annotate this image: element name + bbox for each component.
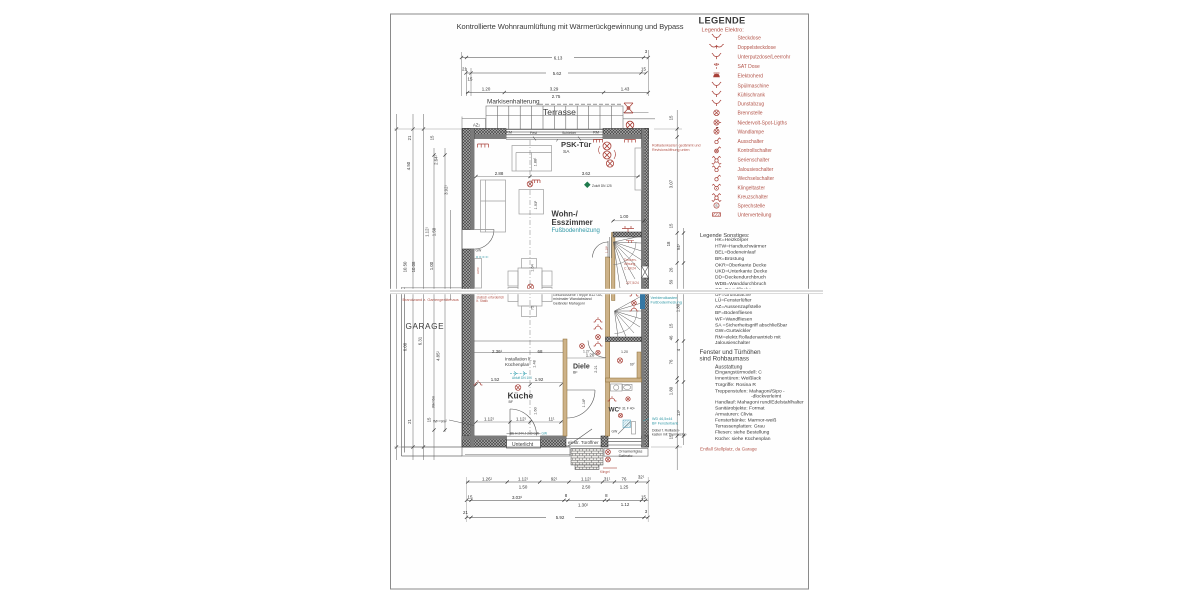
svg-text:SA =Sicherheitsgriff abschließ: SA =Sicherheitsgriff abschließbar <box>715 323 787 329</box>
svg-text:1.48: 1.48 <box>533 360 537 367</box>
svg-text:Jalousieschalter: Jalousieschalter <box>738 167 774 173</box>
svg-text:Kreuzschalter: Kreuzschalter <box>738 195 769 201</box>
svg-text:1.16¹: 1.16¹ <box>582 398 586 407</box>
svg-text:Legende Elektro:: Legende Elektro: <box>702 27 745 33</box>
svg-text:15: 15 <box>468 495 473 500</box>
svg-text:1.93¹: 1.93¹ <box>534 200 538 209</box>
svg-text:15: 15 <box>641 495 646 500</box>
svg-text:Küchenplan: Küchenplan <box>505 362 530 367</box>
svg-text:Fußbodenheizung: Fußbodenheizung <box>552 228 600 234</box>
svg-text:1.20: 1.20 <box>621 350 628 354</box>
svg-text:sind Rohbaumass: sind Rohbaumass <box>700 355 750 362</box>
svg-text:1.25: 1.25 <box>620 484 629 489</box>
svg-text:2.64¹: 2.64¹ <box>434 155 439 165</box>
svg-text:Kontrollschalter: Kontrollschalter <box>738 148 773 154</box>
svg-text:Zuluft DN 125: Zuluft DN 125 <box>592 184 612 188</box>
svg-text:3.07: 3.07 <box>669 179 674 188</box>
svg-text:LEGENDE: LEGENDE <box>699 16 746 26</box>
svg-text:Kühlschrank: Kühlschrank <box>738 92 766 98</box>
svg-text:3.62: 3.62 <box>582 171 591 176</box>
svg-text:PSK-Tür: PSK-Tür <box>561 140 591 149</box>
svg-text:BEL=Bodeneinlauf: BEL=Bodeneinlauf <box>715 249 756 255</box>
svg-text:Entfall Stellplatz, da Garage: Entfall Stellplatz, da Garage <box>700 447 757 452</box>
svg-text:RM=elektr.Rolladenantrieb mit: RM=elektr.Rolladenantrieb mit <box>715 334 781 340</box>
svg-text:15: 15 <box>669 115 674 120</box>
svg-text:kasten mit Thermostop: kasten mit Thermostop <box>652 432 687 436</box>
svg-text:18: 18 <box>666 241 671 246</box>
svg-text:1.12¹: 1.12¹ <box>518 476 529 481</box>
svg-text:RM: RM <box>593 130 599 135</box>
svg-text:Diele: Diele <box>573 364 590 371</box>
svg-text:HTW=Handtuchwärmer: HTW=Handtuchwärmer <box>715 243 767 249</box>
svg-text:RM: RM <box>506 130 512 135</box>
svg-text:GW: GW <box>542 431 548 435</box>
svg-text:21: 21 <box>462 67 467 72</box>
svg-text:3.92¹: 3.92¹ <box>444 185 449 195</box>
svg-text:46: 46 <box>669 335 674 340</box>
svg-text:Klingel: Klingel <box>600 470 610 474</box>
svg-text:5.62: 5.62 <box>553 71 562 76</box>
svg-text:Eingangstürmodell: C: Eingangstürmodell: C <box>715 370 762 376</box>
svg-text:21: 21 <box>407 419 412 424</box>
svg-text:1.26¹: 1.26¹ <box>482 476 493 481</box>
svg-text:C 19/24: C 19/24 <box>624 266 636 270</box>
svg-text:2.50: 2.50 <box>582 484 591 489</box>
svg-text:15: 15 <box>669 323 674 328</box>
svg-text:Ornamentglas: Ornamentglas <box>619 450 643 454</box>
svg-text:SAT Dose: SAT Dose <box>738 64 761 70</box>
svg-text:Fliesen: siehe Bestellung: Fliesen: siehe Bestellung <box>715 430 770 436</box>
svg-text:1.20: 1.20 <box>482 87 491 92</box>
svg-text:LÜ=Fensterlüfter: LÜ=Fensterlüfter <box>715 297 752 304</box>
svg-text:WF=Wandfliesen: WF=Wandfliesen <box>715 317 752 323</box>
svg-text:26: 26 <box>669 267 674 272</box>
svg-text:Jalousieschalter: Jalousieschalter <box>715 340 750 346</box>
svg-text:Ausschalter: Ausschalter <box>738 139 764 145</box>
svg-text:6.00: 6.00 <box>403 342 408 351</box>
svg-text:WF=9m²: WF=9m² <box>433 420 448 424</box>
svg-text:15: 15 <box>468 77 473 82</box>
svg-text:1.12¹: 1.12¹ <box>516 417 527 422</box>
svg-text:WC: WC <box>609 407 620 414</box>
svg-text:lt. Statik: lt. Statik <box>477 299 489 303</box>
svg-text:GW: GW <box>476 249 483 253</box>
svg-text:1.20: 1.20 <box>586 353 595 358</box>
svg-text:WDB=Wanddurchbruch: WDB=Wanddurchbruch <box>715 281 767 287</box>
svg-text:13¹: 13¹ <box>676 409 681 416</box>
svg-text:-dlockverleimt: -dlockverleimt <box>751 394 782 400</box>
svg-text:1.12¹: 1.12¹ <box>581 476 592 481</box>
svg-text:GW=Gurtwickler: GW=Gurtwickler <box>715 328 751 334</box>
svg-text:AZ2: AZ2 <box>473 123 480 128</box>
svg-text:Rollladenkasten gedämmt und: Rollladenkasten gedämmt und <box>652 143 701 147</box>
svg-text:DD=Deckendurchbruch: DD=Deckendurchbruch <box>715 275 766 281</box>
svg-text:1.92: 1.92 <box>535 377 544 382</box>
svg-text:Geländer Mahagoni: Geländer Mahagoni <box>553 302 585 306</box>
svg-text:Unterverteilung: Unterverteilung <box>738 212 772 218</box>
svg-text:5.92: 5.92 <box>556 515 565 520</box>
svg-text:1.50: 1.50 <box>432 227 437 236</box>
svg-text:OKR=Oberkante Decke: OKR=Oberkante Decke <box>715 263 767 269</box>
svg-text:Innentüren: Weißlack: Innentüren: Weißlack <box>715 376 762 382</box>
svg-text:BF: BF <box>509 400 514 404</box>
svg-text:1.12: 1.12 <box>621 502 630 507</box>
svg-text:1.80: 1.80 <box>669 386 674 395</box>
svg-text:GW: GW <box>612 430 619 434</box>
svg-text:Unterputzdose/Leerrohr: Unterputzdose/Leerrohr <box>738 54 791 60</box>
svg-text:Fensterbänke: Marmor-weiß: Fensterbänke: Marmor-weiß <box>715 418 776 424</box>
svg-text:Wechselschalter: Wechselschalter <box>738 176 775 182</box>
svg-text:1.00: 1.00 <box>429 261 434 270</box>
svg-text:Küche: siehe Küchenplan: Küche: siehe Küchenplan <box>715 436 771 442</box>
svg-text:Ausstattung: Ausstattung <box>715 364 743 370</box>
svg-text:Sprechstelle: Sprechstelle <box>738 203 766 209</box>
svg-text:1.60: 1.60 <box>534 407 538 414</box>
svg-text:10.50: 10.50 <box>403 261 408 272</box>
svg-text:15: 15 <box>669 223 674 228</box>
svg-text:4.85¹: 4.85¹ <box>436 351 441 361</box>
svg-text:1.43: 1.43 <box>621 87 630 92</box>
svg-text:Armaturen: Clivia: Armaturen: Clivia <box>715 411 753 417</box>
svg-text:F 31 F 40¹: F 31 F 40¹ <box>619 407 636 411</box>
svg-text:Fest: Fest <box>530 131 537 135</box>
svg-text:1.30¹: 1.30¹ <box>578 503 589 508</box>
svg-text:21: 21 <box>463 510 468 515</box>
svg-text:2.75: 2.75 <box>552 94 561 99</box>
svg-text:76: 76 <box>622 476 627 481</box>
svg-text:Sanitärobjekte: Format: Sanitärobjekte: Format <box>715 406 765 412</box>
svg-text:Abluft DN 100: Abluft DN 100 <box>512 376 532 380</box>
svg-text:1.00: 1.00 <box>620 214 629 219</box>
svg-text:BF=Bodenfliesen: BF=Bodenfliesen <box>715 310 753 316</box>
svg-text:4.50: 4.50 <box>406 161 411 170</box>
svg-text:Terrasse: Terrasse <box>543 107 576 117</box>
svg-text:68: 68 <box>538 349 543 354</box>
svg-text:Esszimmer: Esszimmer <box>552 218 593 227</box>
svg-text:1.50: 1.50 <box>519 484 528 489</box>
svg-text:Treppenstufen: Mahagoni/Sipo -: Treppenstufen: Mahagoni/Sipo - <box>715 388 785 394</box>
svg-text:Niedervolt-Spot-Ligths: Niedervolt-Spot-Ligths <box>738 120 788 126</box>
svg-text:2.36¹: 2.36¹ <box>492 349 503 354</box>
svg-text:11¹: 11¹ <box>548 417 555 422</box>
svg-text:15: 15 <box>427 417 432 422</box>
svg-text:1.64: 1.64 <box>531 264 535 271</box>
svg-text:SA: SA <box>563 149 570 155</box>
svg-text:Fußbodenheizung: Fußbodenheizung <box>651 300 682 305</box>
svg-text:15: 15 <box>641 67 646 72</box>
svg-text:3.03¹: 3.03¹ <box>512 495 523 500</box>
svg-text:75: 75 <box>531 306 535 310</box>
svg-text:31¹: 31¹ <box>604 476 611 481</box>
svg-text:Serienschalter: Serienschalter <box>738 157 770 163</box>
svg-text:Revisionsöffnung unten: Revisionsöffnung unten <box>652 148 690 152</box>
svg-text:21: 21 <box>407 135 412 140</box>
svg-text:Unterlicht: Unterlicht <box>512 442 534 448</box>
svg-text:Schieber: Schieber <box>562 131 577 135</box>
svg-text:Wandlampe: Wandlampe <box>738 129 765 135</box>
svg-text:2.21: 2.21 <box>594 365 598 372</box>
svg-text:BF Fensterbank: BF Fensterbank <box>652 421 678 425</box>
svg-text:BF: BF <box>573 371 578 375</box>
svg-text:76: 76 <box>669 359 674 364</box>
svg-text:Dunstabzug: Dunstabzug <box>738 101 765 107</box>
svg-text:Doppelsteckdose: Doppelsteckdose <box>738 45 777 51</box>
svg-text:Brennstelle: Brennstelle <box>738 111 763 117</box>
svg-text:Spülmaschine: Spülmaschine <box>738 83 770 89</box>
svg-text:Terrassenplatten: Grau: Terrassenplatten: Grau <box>715 424 765 430</box>
svg-text:1.12¹: 1.12¹ <box>484 417 495 422</box>
svg-text:1.18¹: 1.18¹ <box>605 246 609 253</box>
svg-text:Türgriffe: Rosina R: Türgriffe: Rosina R <box>715 382 756 388</box>
svg-text:WH=6m: WH=6m <box>432 396 436 409</box>
svg-text:UKD=Unterkante Decke: UKD=Unterkante Decke <box>715 269 768 275</box>
svg-text:59: 59 <box>669 279 674 284</box>
svg-text:Handlauf: Mahagoni rund/Edelst: Handlauf: Mahagoni rund/Edelstahlhalter <box>715 400 804 406</box>
svg-text:BE H 244 J-240 GW: BE H 244 J-240 GW <box>510 432 539 436</box>
svg-text:227,5/24: 227,5/24 <box>626 281 639 285</box>
svg-text:2.88: 2.88 <box>495 171 504 176</box>
svg-text:HK=Heizkörper: HK=Heizkörper <box>715 237 749 243</box>
svg-text:32¹: 32¹ <box>638 475 645 480</box>
svg-text:Elektroherd: Elektroherd <box>738 73 764 79</box>
svg-text:6.31: 6.31 <box>418 336 423 345</box>
svg-text:10.08: 10.08 <box>411 261 416 272</box>
svg-text:GARAGE: GARAGE <box>406 322 445 331</box>
svg-text:Kontrollierte Wohnraumlüftung: Kontrollierte Wohnraumlüftung mit Wärmer… <box>457 22 684 31</box>
svg-text:15: 15 <box>430 135 435 140</box>
svg-text:69°: 69° <box>630 363 636 367</box>
svg-text:Klingeltaster: Klingeltaster <box>738 185 766 191</box>
svg-text:1.52: 1.52 <box>491 377 500 382</box>
svg-text:Steckdose: Steckdose <box>738 35 762 41</box>
svg-text:minimaler Wandabstand: minimaler Wandabstand <box>553 297 592 301</box>
svg-text:92¹: 92¹ <box>551 476 558 481</box>
svg-text:3.29: 3.29 <box>550 87 559 92</box>
svg-text:Markisenhalterung: Markisenhalterung <box>487 98 540 105</box>
svg-text:1.12¹: 1.12¹ <box>425 227 430 237</box>
svg-text:WD 46,5x44: WD 46,5x44 <box>652 417 672 421</box>
svg-text:HWR: HWR <box>476 267 480 274</box>
svg-text:6.13: 6.13 <box>554 56 563 61</box>
svg-text:BR=Brüstung: BR=Brüstung <box>715 256 745 262</box>
svg-text:AZ=Aussenzapfstelle: AZ=Aussenzapfstelle <box>715 304 761 310</box>
svg-text:94¹: 94¹ <box>676 243 681 250</box>
svg-text:1.88¹: 1.88¹ <box>534 157 538 166</box>
